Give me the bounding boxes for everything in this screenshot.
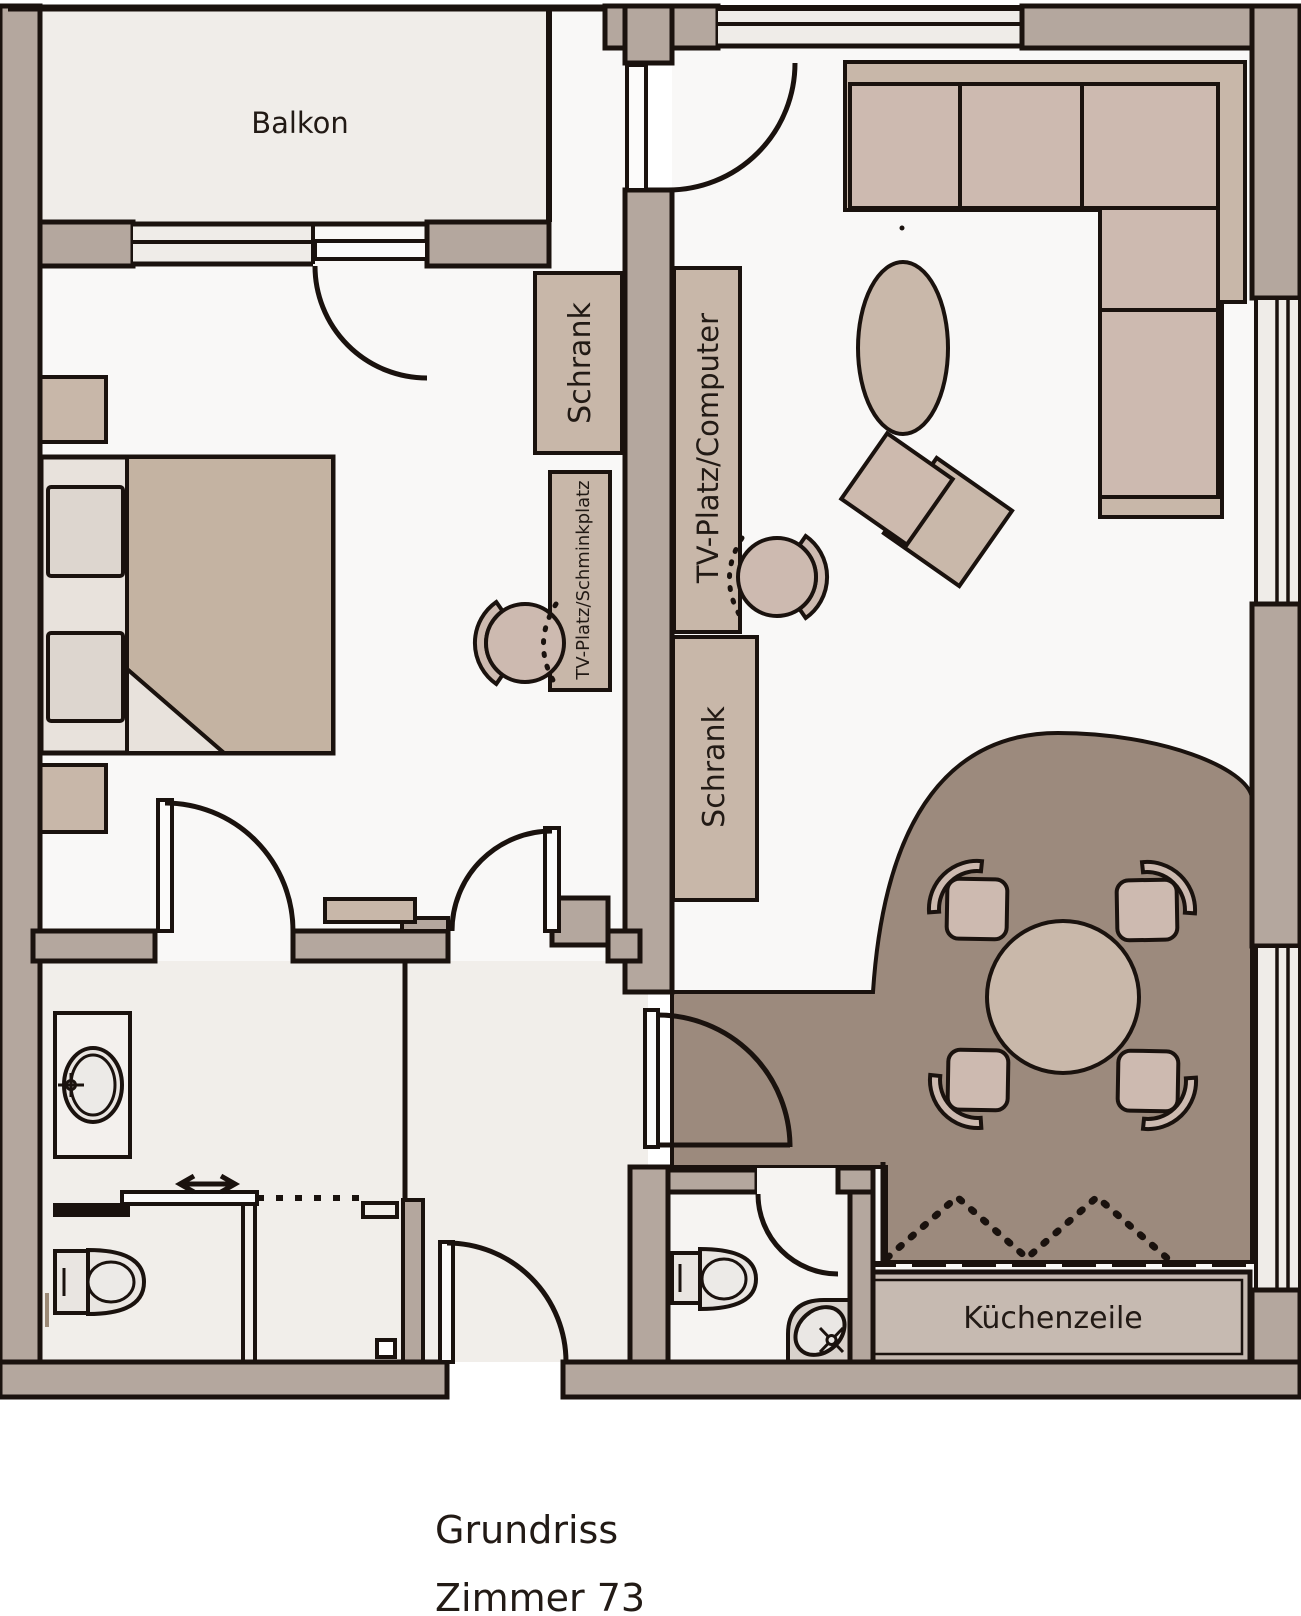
chair-seat <box>738 538 816 616</box>
partition-stub <box>363 1203 397 1217</box>
oval-coffee-table <box>858 262 948 434</box>
sofa-cushion <box>960 84 1082 208</box>
partition-wall-bar <box>53 1203 130 1217</box>
bedroom-bottom-wall <box>293 931 448 961</box>
dot-mark <box>900 226 905 231</box>
bedroom-bottom-wall <box>33 931 155 961</box>
toilet-bathroom <box>55 1250 144 1314</box>
double-bed <box>41 457 333 753</box>
bedroom-wardrobe-label: Schrank <box>563 302 598 424</box>
sofa-cushion <box>1100 208 1218 310</box>
pillow <box>48 487 123 576</box>
living-window-top <box>718 6 1022 48</box>
computer-chair <box>738 536 827 618</box>
sofa-cushion <box>850 84 960 208</box>
outer-wall-bottom <box>0 1362 447 1397</box>
wc-left-wall <box>630 1167 668 1363</box>
title-line1: Grundriss <box>435 1508 618 1552</box>
toilet-bowl <box>88 1262 134 1302</box>
corner-sink <box>786 1297 854 1364</box>
floorplan-page: Balkon Schrank TV-Platz/Schminkplatz TV-… <box>0 0 1301 1616</box>
shower-wall <box>403 1200 423 1362</box>
wall-stub <box>427 222 549 266</box>
wc-top-wall <box>668 1170 757 1192</box>
wc-corner-wall <box>838 1168 873 1192</box>
shower-partition <box>243 1204 255 1362</box>
pillow <box>48 633 123 721</box>
living-desk-label: TV-Platz/Computer <box>691 313 725 584</box>
wc-toilet-tank <box>672 1253 700 1303</box>
title-line2: Zimmer 73 <box>435 1576 645 1616</box>
wc-right-wall <box>850 1192 873 1362</box>
wc-door-opening <box>757 1168 838 1194</box>
wc-toilet-bowl <box>702 1259 746 1299</box>
outer-wall-right <box>1252 6 1300 298</box>
living-wardrobe-label: Schrank <box>697 706 732 828</box>
sofa-cushion <box>1100 310 1218 497</box>
balcony-label: Balkon <box>251 106 349 140</box>
middle-wall <box>625 190 672 992</box>
bedroom-bottom-wall <box>608 931 640 961</box>
nightstand-bottom <box>40 765 106 832</box>
sofa-cushion <box>1082 84 1218 208</box>
kitchen-unit-label: Küchenzeile <box>963 1301 1143 1336</box>
toilet-tank <box>55 1251 89 1313</box>
bedroom-desk-label: TV-Platz/Schminkplatz <box>573 480 594 680</box>
radiator <box>325 899 415 922</box>
outer-wall-right <box>1252 604 1300 946</box>
outer-wall-left <box>0 6 40 1397</box>
dining-table <box>987 921 1139 1073</box>
middle-wall-top <box>625 6 672 63</box>
shower-drain <box>377 1340 395 1357</box>
nightstand-top <box>40 377 106 442</box>
wall-stub <box>40 222 133 266</box>
floorplan-drawing: Balkon Schrank TV-Platz/Schminkplatz TV-… <box>0 0 1301 1616</box>
outer-wall-bottom <box>563 1362 1300 1397</box>
